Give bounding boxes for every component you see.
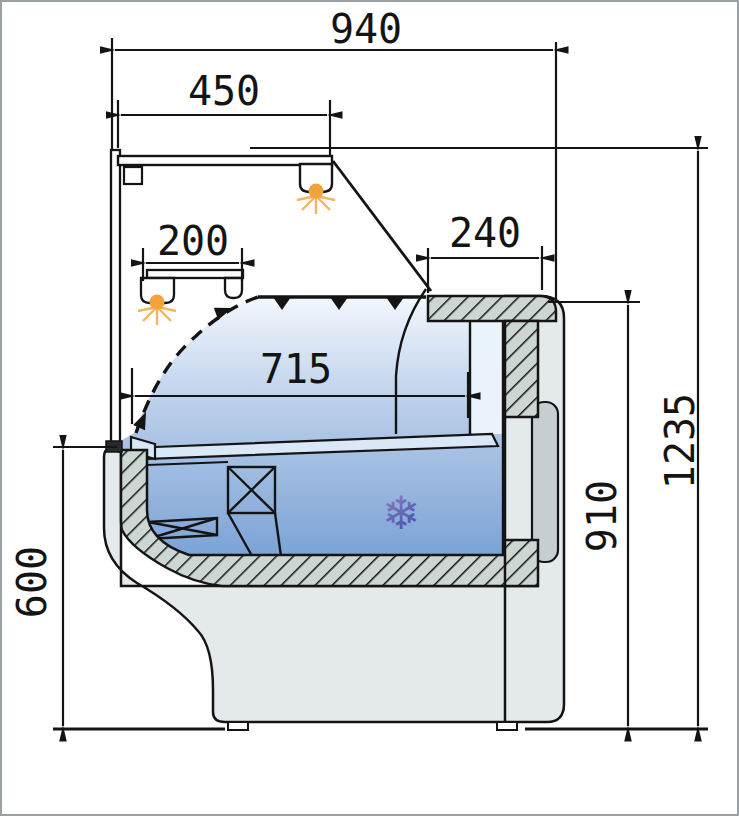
cross-section-diagram: ❄ [0,0,739,816]
svg-text:715: 715 [260,346,332,392]
canopy-bracket [124,167,142,184]
worktop-rim-insulation [428,296,556,321]
shelf-end-cap [225,278,242,298]
svg-text:940: 940 [330,6,402,52]
svg-text:200: 200 [157,218,229,264]
svg-text:450: 450 [188,68,260,114]
svg-text:600: 600 [9,546,55,618]
shelf [147,270,243,278]
rear-service-panel [532,402,558,562]
front-glass [111,150,120,443]
svg-text:1235: 1235 [657,393,703,489]
foot-left [228,722,248,730]
snowflake-icon: ❄ [382,486,421,540]
right-wall-insulation-upper [505,321,538,417]
foot-right [497,722,517,730]
screenshot-frame: ❄ [0,0,739,816]
right-wall-insulation-lower [505,540,538,586]
svg-text:240: 240 [449,210,521,256]
svg-text:910: 910 [579,480,625,552]
